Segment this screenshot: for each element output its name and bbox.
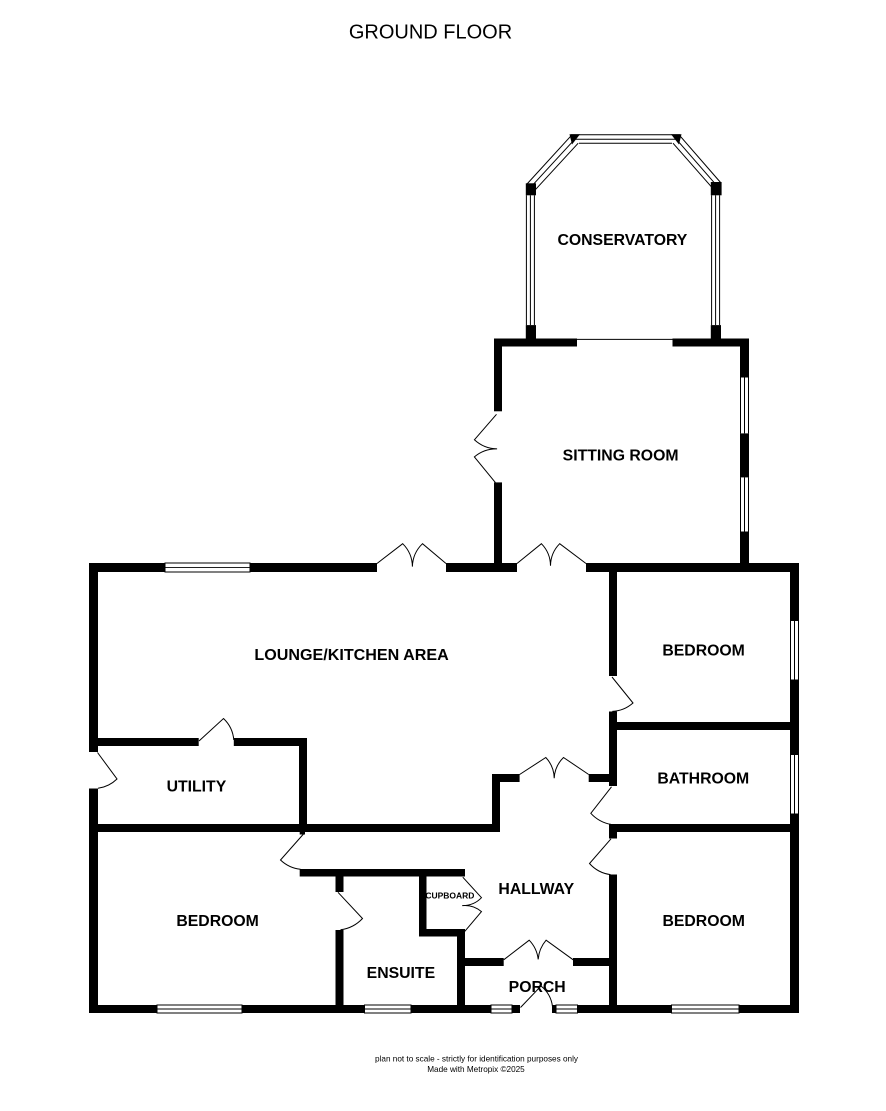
svg-text:CONSERVATORY: CONSERVATORY bbox=[557, 232, 687, 249]
svg-text:GROUND FLOOR: GROUND FLOOR bbox=[349, 22, 512, 44]
svg-text:CUPBOARD: CUPBOARD bbox=[425, 891, 474, 901]
svg-text:BEDROOM: BEDROOM bbox=[662, 913, 745, 930]
svg-text:BEDROOM: BEDROOM bbox=[662, 643, 745, 660]
svg-text:UTILITY: UTILITY bbox=[167, 778, 227, 795]
svg-text:HALLWAY: HALLWAY bbox=[498, 881, 574, 898]
svg-text:plan not to scale - strictly f: plan not to scale - strictly for identif… bbox=[375, 1054, 579, 1063]
svg-text:PORCH: PORCH bbox=[509, 979, 566, 996]
svg-text:BATHROOM: BATHROOM bbox=[657, 771, 749, 788]
svg-text:ENSUITE: ENSUITE bbox=[367, 965, 435, 982]
svg-text:Made with Metropix ©2025: Made with Metropix ©2025 bbox=[427, 1065, 525, 1074]
svg-text:LOUNGE/KITCHEN AREA: LOUNGE/KITCHEN AREA bbox=[254, 646, 449, 664]
svg-text:BEDROOM: BEDROOM bbox=[176, 913, 259, 930]
svg-text:SITTING ROOM: SITTING ROOM bbox=[563, 448, 679, 465]
